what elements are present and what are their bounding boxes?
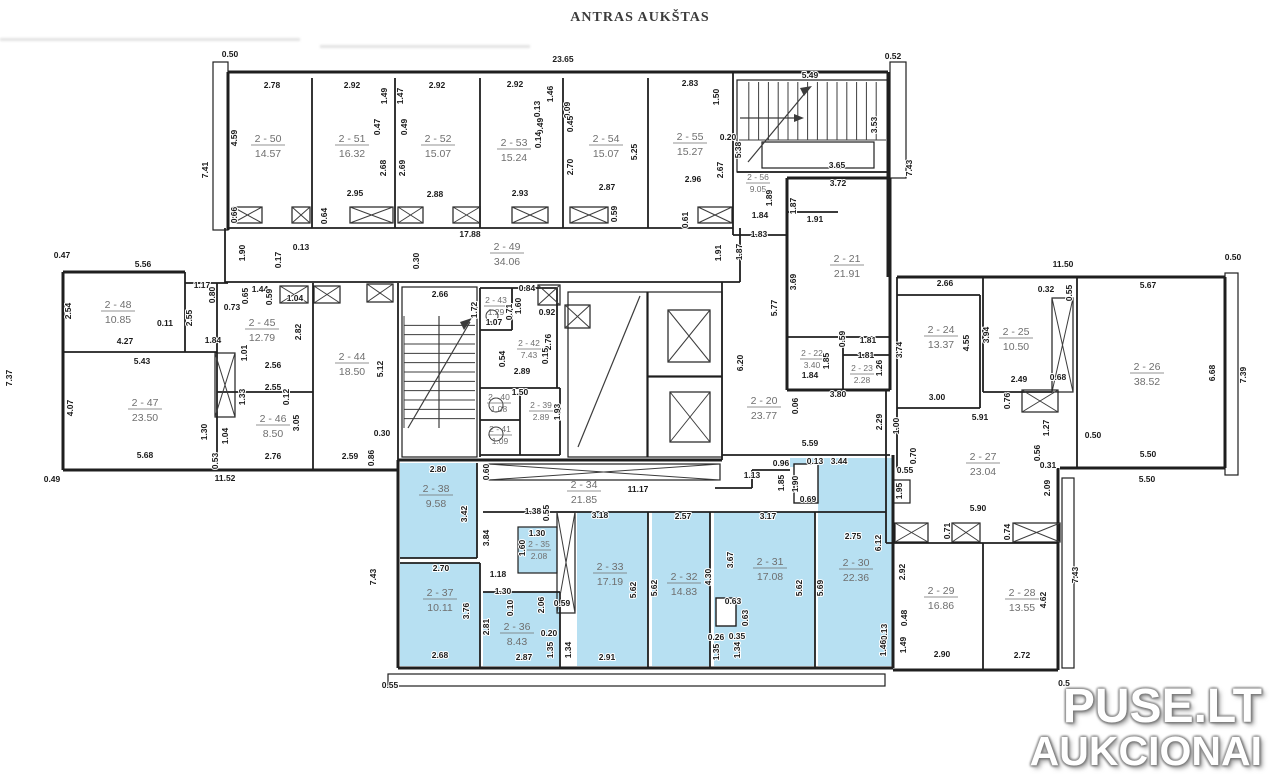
dimension-label: 2.83	[682, 78, 699, 88]
room-number: 2 - 28	[1009, 587, 1036, 599]
room-number: 2 - 44	[339, 351, 366, 363]
dimension-label: 2.92	[344, 80, 361, 90]
dimension-label: 0.53	[210, 452, 220, 469]
dimension-label: 0.64	[319, 207, 329, 224]
dimension-label: 1.87	[788, 197, 798, 214]
dimension-label: 2.81	[481, 618, 491, 635]
dimension-label: 4.62	[1038, 591, 1048, 608]
dimension-label: 5.62	[649, 579, 659, 596]
dimension-label: 0.17	[273, 251, 283, 268]
room-area: 14.83	[671, 586, 697, 598]
room-number: 2 - 39	[530, 400, 552, 410]
dimension-label: 2.87	[599, 182, 616, 192]
dimension-label: 0.55	[1064, 284, 1074, 301]
room-number: 2 - 23	[851, 363, 873, 373]
dimension-label: 2.54	[63, 302, 73, 319]
structure-box	[388, 674, 885, 686]
dimension-label: 0.13	[879, 623, 889, 640]
room-number: 2 - 26	[1134, 361, 1161, 373]
dimension-label: 2.70	[433, 563, 450, 573]
dimension-label: 0.65	[240, 287, 250, 304]
dimension-label: 0.74	[1002, 523, 1012, 540]
dimension-label: 0.68	[1050, 372, 1067, 382]
dimension-label: 2.66	[937, 278, 954, 288]
dimension-label: 2.88	[427, 189, 444, 199]
room-number: 2 - 51	[339, 133, 366, 145]
dimension-label: 7.41	[200, 161, 210, 178]
dimension-label: 7.39	[1238, 366, 1248, 383]
room-number: 2 - 34	[571, 479, 598, 491]
room-area: 21.85	[571, 494, 597, 506]
dimension-label: 0.20	[720, 132, 737, 142]
dimension-label: 1.90	[237, 244, 247, 261]
room-number: 2 - 43	[485, 295, 507, 305]
dimension-label: 4.55	[961, 334, 971, 351]
room-area: 1.09	[492, 436, 509, 446]
dimension-label: 5.50	[1140, 449, 1157, 459]
dimension-label: 0.49	[399, 118, 409, 135]
dimension-label: 0.84	[519, 283, 536, 293]
dimension-label: 5.91	[972, 412, 989, 422]
dimension-label: 1.46	[878, 639, 888, 656]
dimension-label: 2.56	[265, 360, 282, 370]
dimension-label: 11.52	[215, 473, 236, 483]
dimension-label: 1.60	[513, 297, 523, 314]
room-number: 2 - 38	[423, 483, 450, 495]
dimension-label: 1.46	[545, 85, 555, 102]
structure-box	[213, 62, 228, 230]
dimension-label: 2.76	[265, 451, 282, 461]
dimension-label: 0.56	[1032, 444, 1042, 461]
room-number: 2 - 25	[1003, 326, 1030, 338]
structure-box	[762, 142, 874, 168]
room-number: 2 - 56	[747, 172, 769, 182]
dimension-label: 4.27	[117, 336, 134, 346]
dimension-label: 2.55	[265, 382, 282, 392]
dimension-label: 3.42	[459, 505, 469, 522]
room-area: 1.29	[488, 307, 505, 317]
floorplan-svg: 2 - 5014.572 - 5116.322 - 5215.072 - 531…	[0, 0, 1280, 776]
dimension-label: 1.50	[512, 387, 529, 397]
room-area: 13.37	[928, 339, 954, 351]
watermark-line2: AUKCIONAI	[1030, 731, 1262, 772]
floorplan-page: ANTRAS AUKŠTAS 2 - 5014.572 - 5116.322 -…	[0, 0, 1280, 776]
watermark-line1: PUSE.LT	[1030, 683, 1262, 731]
dimension-label: 3.69	[788, 273, 798, 290]
dimension-label: 0.63	[725, 596, 742, 606]
dimension-label: 0.50	[1085, 430, 1102, 440]
dimension-label: 5.12	[375, 360, 385, 377]
dimension-label: 0.59	[837, 330, 847, 347]
room-area: 23.50	[132, 412, 158, 424]
dimension-label: 2.89	[514, 366, 531, 376]
dimension-label: 5.50	[1139, 474, 1156, 484]
dimension-label: 2.66	[432, 289, 449, 299]
dimension-label: 0.10	[505, 599, 515, 616]
dimension-label: 2.82	[293, 323, 303, 340]
dimension-label: 0.49	[44, 474, 61, 484]
dimension-label: 1.18	[490, 569, 507, 579]
room-number: 2 - 31	[757, 556, 784, 568]
dimension-label: 7.43	[904, 159, 914, 176]
dimension-label: 0.35	[729, 631, 746, 641]
dimension-label: 2.69	[397, 159, 407, 176]
dimension-label: 2.92	[897, 563, 907, 580]
room-number: 2 - 29	[928, 585, 955, 597]
dimension-label: 0.54	[497, 350, 507, 367]
dimension-label: 0.06	[790, 397, 800, 414]
dimension-label: 1.50	[711, 88, 721, 105]
dimension-label: 3.00	[929, 392, 946, 402]
dimension-label: 2.68	[432, 650, 449, 660]
dimension-label: 0.12	[281, 388, 291, 405]
dimension-label: 3.80	[830, 389, 847, 399]
dimension-label: 1.07	[486, 317, 503, 327]
dimension-label: 5.59	[802, 438, 819, 448]
dimension-label: 5.77	[769, 299, 779, 316]
room-number: 2 - 32	[671, 571, 698, 583]
dimension-label: 0.13	[293, 242, 310, 252]
room-area: 7.43	[521, 350, 538, 360]
room-area: 16.86	[928, 600, 954, 612]
dimension-label: 2.09	[1042, 479, 1052, 496]
dimension-label: 2.55	[184, 309, 194, 326]
room-area: 10.11	[427, 602, 453, 614]
dimension-label: 1.34	[732, 641, 742, 658]
structure-box	[648, 377, 722, 457]
dimension-label: 2.95	[347, 188, 364, 198]
dimension-label: 2.68	[378, 159, 388, 176]
dimension-label: 4.59	[229, 129, 239, 146]
dimension-label: 3.44	[831, 456, 848, 466]
dimension-label: 2.06	[536, 596, 546, 613]
dimension-label: 2.80	[430, 464, 447, 474]
dimension-label: 3.53	[869, 116, 879, 133]
dimension-label: 0.59	[264, 288, 274, 305]
dimension-label: 0.26	[708, 632, 725, 642]
dimension-label: 2.57	[675, 511, 692, 521]
dimension-label: 2.92	[429, 80, 446, 90]
dimension-label: 0.20	[541, 628, 558, 638]
dimension-label: 5.25	[629, 143, 639, 160]
dimension-label: 0.63	[740, 609, 750, 626]
dimension-label: 1.01	[239, 344, 249, 361]
dimension-label: 1.84	[802, 370, 819, 380]
dimension-label: 0.66	[229, 206, 239, 223]
dimension-label: 1.49	[379, 87, 389, 104]
dimension-label: 0.92	[539, 307, 556, 317]
dimension-label: 5.62	[794, 579, 804, 596]
dimension-label: 0.96	[773, 458, 790, 468]
dimension-label: 0.50	[1225, 252, 1242, 262]
room-area: 17.19	[597, 576, 623, 588]
dimension-label: 0.55	[382, 680, 399, 690]
room-number: 2 - 27	[970, 451, 997, 463]
dimension-label: 0.60	[481, 463, 491, 480]
dimension-label: 1.33	[237, 388, 247, 405]
room-number: 2 - 40	[488, 392, 510, 402]
room-number: 2 - 50	[255, 133, 282, 145]
room-number: 2 - 46	[260, 413, 287, 425]
dimension-label: 3.72	[830, 178, 847, 188]
room-area: 10.50	[1003, 341, 1029, 353]
dimension-label: 3.76	[461, 602, 471, 619]
room-area: 15.07	[593, 148, 619, 160]
dimension-label: 1.00	[891, 417, 901, 434]
dimension-label: 1.60	[517, 539, 527, 556]
dimension-label: 0.13	[532, 100, 542, 117]
room-area: 22.36	[843, 572, 869, 584]
dimension-label: 5.38	[733, 141, 743, 158]
room-number: 2 - 24	[928, 324, 955, 336]
room-area: 14.57	[255, 148, 281, 160]
room-area: 8.50	[263, 428, 284, 440]
room-area: 15.24	[501, 152, 527, 164]
dimension-label: 1.89	[764, 189, 774, 206]
dimension-label: 1.81	[858, 350, 875, 360]
room-number: 2 - 42	[518, 338, 540, 348]
dimension-label: 7.43	[368, 568, 378, 585]
dimension-label: 2.96	[685, 174, 702, 184]
dimension-label: 1.30	[199, 423, 209, 440]
dimension-label: 23.65	[552, 54, 574, 64]
dimension-label: 0.14	[533, 131, 543, 148]
room-area: 13.55	[1009, 602, 1035, 614]
dimension-label: 2.70	[565, 158, 575, 175]
dimension-label: 2.49	[1011, 374, 1028, 384]
room-number: 2 - 52	[425, 133, 452, 145]
dimension-label: 3.05	[291, 414, 301, 431]
dimension-label: 5.69	[815, 579, 825, 596]
room-area: 12.79	[249, 332, 275, 344]
dimension-label: 0.59	[554, 598, 571, 608]
room-number: 2 - 22	[801, 348, 823, 358]
dimension-label: 2.78	[264, 80, 281, 90]
dimension-label: 0.71	[504, 303, 514, 320]
dimension-label: 0.86	[366, 449, 376, 466]
dimension-label: 1.47	[395, 87, 405, 104]
stair-guide	[578, 296, 640, 447]
room-area: 23.04	[970, 466, 996, 478]
watermark: PUSE.LT AUKCIONAI	[1030, 683, 1262, 772]
room-number: 2 - 48	[105, 299, 132, 311]
room-area: 18.50	[339, 366, 365, 378]
dimension-label: 1.84	[205, 335, 222, 345]
dimension-label: 1.30	[529, 528, 546, 538]
dimension-label: 3.74	[894, 341, 904, 358]
dimension-label: 1.04	[220, 427, 230, 444]
room-area: 2.28	[854, 375, 871, 385]
room-number: 2 - 30	[843, 557, 870, 569]
dimension-label: 1.30	[495, 586, 512, 596]
dimension-label: 0.30	[411, 252, 421, 269]
dimension-label: 1.27	[1041, 419, 1051, 436]
dimension-label: 5.43	[134, 356, 151, 366]
dimension-label: 1.81	[860, 335, 877, 345]
dimension-label: 1.91	[713, 244, 723, 261]
dimension-label: 0.31	[1040, 460, 1057, 470]
dimension-label: 5.67	[1140, 280, 1157, 290]
direction-arrow	[794, 114, 804, 122]
structure-box	[648, 292, 722, 376]
room-area: 2.08	[531, 551, 548, 561]
dimension-label: 0.30	[374, 428, 391, 438]
dimension-label: 6.20	[735, 354, 745, 371]
dimension-label: 1.49	[898, 636, 908, 653]
dimension-label: 0.47	[54, 250, 71, 260]
room-number: 2 - 41	[489, 424, 511, 434]
dimension-label: 6.12	[873, 534, 883, 551]
direction-arrow	[800, 86, 812, 96]
dimension-label: 5.68	[137, 450, 154, 460]
dimension-label: 2.72	[1014, 650, 1031, 660]
dimension-label: 1.38	[525, 506, 542, 516]
room-area: 10.85	[105, 314, 131, 326]
room-area: 21.91	[834, 268, 860, 280]
dimension-label: 0.69	[800, 494, 817, 504]
dimension-label: 1.34	[563, 641, 573, 658]
room-area: 17.08	[757, 571, 783, 583]
dimension-label: 0.70	[908, 447, 918, 464]
room-number: 2 - 45	[249, 317, 276, 329]
dimension-label: 1.91	[807, 214, 824, 224]
dimension-label: 7.37	[4, 369, 14, 386]
dimension-label: 0.48	[899, 609, 909, 626]
dimension-label: 5.62	[628, 581, 638, 598]
room-number: 2 - 35	[528, 539, 550, 549]
dimension-label: 1.84	[752, 210, 769, 220]
dimension-label: 5.49	[802, 70, 819, 80]
room-area: 15.27	[677, 146, 703, 158]
room-number: 2 - 47	[132, 397, 159, 409]
dimension-label: 0.52	[885, 51, 902, 61]
room-area: 1.08	[491, 404, 508, 414]
dimension-label: 1.87	[734, 243, 744, 260]
dimension-label: 2.87	[516, 652, 533, 662]
room-area: 16.32	[339, 148, 365, 160]
room-area: 34.06	[494, 256, 520, 268]
dimension-label: 11.17	[628, 484, 649, 494]
dimension-label: 0.80	[207, 286, 217, 303]
room-number: 2 - 20	[751, 395, 778, 407]
dimension-label: 0.55	[541, 504, 551, 521]
dimension-label: 3.67	[725, 551, 735, 568]
dimension-label: 0.55	[897, 465, 914, 475]
dimension-label: 2.59	[342, 451, 359, 461]
room-area: 38.52	[1134, 376, 1160, 388]
structure-box	[737, 80, 888, 172]
dimension-label: 4.30	[703, 568, 713, 585]
dimension-label: 2.29	[874, 413, 884, 430]
dimension-label: 1.83	[751, 229, 768, 239]
dimension-label: 0.32	[1038, 284, 1055, 294]
room-number: 2 - 33	[597, 561, 624, 573]
dimension-label: 0.76	[1002, 392, 1012, 409]
dimension-label: 6.68	[1207, 364, 1217, 381]
dimension-label: 1.95	[894, 482, 904, 499]
dimension-label: 0.11	[157, 318, 173, 328]
dimension-label: 3.17	[760, 511, 777, 521]
room-area: 15.07	[425, 148, 451, 160]
dimension-label: 0.15	[540, 347, 550, 364]
room-number: 2 - 21	[834, 253, 861, 265]
dimension-label: 5.90	[970, 503, 987, 513]
dimension-label: 1.26	[874, 359, 884, 376]
dimension-label: 3.84	[481, 529, 491, 546]
dimension-label: 1.72	[469, 301, 479, 318]
dimension-label: 1.35	[545, 641, 555, 658]
dimension-label: 2.75	[845, 531, 862, 541]
dimension-label: 1.13	[744, 470, 761, 480]
dimension-label: 2.92	[507, 79, 524, 89]
dimension-label: 0.73	[224, 302, 241, 312]
dimension-label: 5.56	[135, 259, 152, 269]
room-area: 3.40	[804, 360, 821, 370]
dimension-label: 0.50	[222, 49, 239, 59]
dimension-label: 0.13	[807, 456, 824, 466]
room-number: 2 - 49	[494, 241, 521, 253]
dimension-label: 0.71	[942, 522, 952, 539]
dimension-label: 0.59	[609, 205, 619, 222]
room-area: 2.89	[533, 412, 550, 422]
room-area: 9.58	[426, 498, 447, 510]
dimension-label: 2.90	[934, 649, 951, 659]
room-number: 2 - 36	[504, 621, 531, 633]
dimension-label: 7.43	[1070, 566, 1080, 583]
dimension-label: 2.67	[715, 161, 725, 178]
dimension-label: 1.85	[776, 474, 786, 491]
dimension-label: 2.93	[512, 188, 529, 198]
room-number: 2 - 55	[677, 131, 704, 143]
dimension-label: 0.45	[565, 115, 575, 132]
dimension-label: 1.85	[821, 352, 831, 369]
dimension-label: 1.90	[790, 475, 800, 492]
dimension-label: 17.88	[459, 229, 481, 239]
dimension-label: 3.94	[981, 326, 991, 343]
dimension-label: 2.91	[599, 652, 616, 662]
dimension-label: 1.35	[711, 643, 721, 660]
dimension-label: 3.65	[829, 160, 846, 170]
dimension-label: 1.93	[552, 403, 562, 420]
room-number: 2 - 37	[427, 587, 454, 599]
dimension-label: 4.07	[65, 399, 75, 416]
room-area: 23.77	[751, 410, 777, 422]
dimension-label: 0.47	[372, 118, 382, 135]
room-number: 2 - 53	[501, 137, 528, 149]
dimension-label: 11.50	[1053, 259, 1074, 269]
structure-box	[1225, 273, 1238, 475]
room-area: 8.43	[507, 636, 528, 648]
dimension-label: 3.18	[592, 510, 609, 520]
dimension-label: 0.61	[680, 211, 690, 228]
room-number: 2 - 54	[593, 133, 620, 145]
dimension-label: 1.04	[287, 293, 304, 303]
